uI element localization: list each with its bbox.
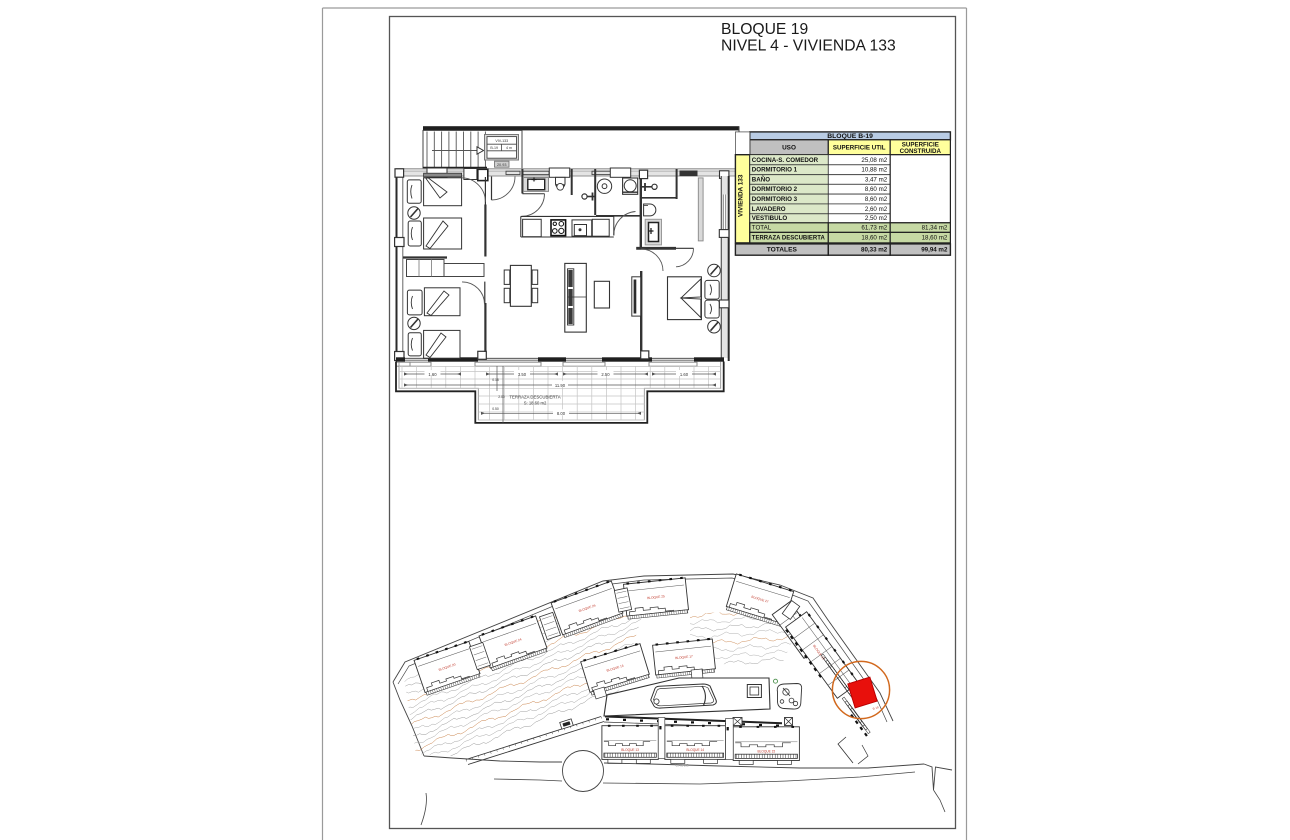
svg-text:B-19: B-19 [490,146,498,150]
svg-text:S: 18.60 m2: S: 18.60 m2 [524,401,547,406]
svg-text:3,47 m2: 3,47 m2 [865,176,888,183]
svg-text:VIV-133: VIV-133 [495,139,508,143]
svg-text:11.90: 11.90 [555,383,566,388]
svg-text:TOTALES: TOTALES [767,247,798,254]
svg-text:BLOQUE B-19: BLOQUE B-19 [827,133,873,140]
svg-text:BLOQUE 13: BLOQUE 13 [621,748,639,752]
svg-text:20.93: 20.93 [497,163,507,167]
svg-text:2.00: 2.00 [498,395,505,399]
svg-text:VIVIENDA 133: VIVIENDA 133 [738,174,745,217]
svg-text:USO: USO [782,144,796,151]
svg-text:LAVADERO: LAVADERO [752,206,786,213]
svg-text:CONSTRUIDA: CONSTRUIDA [900,148,942,155]
svg-text:1.60: 1.60 [428,372,437,377]
svg-text:TOTAL: TOTAL [752,224,772,231]
svg-text:61,73 m2: 61,73 m2 [861,224,887,231]
svg-text:25,08 m2: 25,08 m2 [861,157,887,164]
svg-text:VESTIBULO: VESTIBULO [752,215,788,222]
svg-text:SUPERFICIE UTIL: SUPERFICIE UTIL [833,144,886,151]
svg-text:8,60 m2: 8,60 m2 [865,186,888,193]
svg-text:DORMITORIO 2: DORMITORIO 2 [752,186,798,193]
svg-text:0.50: 0.50 [492,407,499,411]
svg-text:C A L L E: C A L L E [675,764,688,768]
svg-text:1.60: 1.60 [680,372,689,377]
svg-text:DORMITORIO 1: DORMITORIO 1 [752,167,798,174]
svg-text:TERRAZA DESCUBIERTA: TERRAZA DESCUBIERTA [752,236,826,242]
svg-text:BLOQUE 15: BLOQUE 15 [757,749,775,753]
svg-text:BLOQUE 14: BLOQUE 14 [686,748,704,752]
svg-text:18,60 m2: 18,60 m2 [861,235,887,242]
svg-text:4 m: 4 m [506,146,512,150]
svg-text:8.00: 8.00 [557,411,566,416]
svg-text:81,34 m2: 81,34 m2 [922,224,948,231]
svg-text:0.18: 0.18 [492,378,499,382]
svg-text:8,60 m2: 8,60 m2 [865,196,888,203]
svg-text:18,60 m2: 18,60 m2 [922,235,948,242]
svg-text:3.50: 3.50 [518,372,527,377]
svg-text:80,33 m2: 80,33 m2 [861,247,888,254]
svg-text:TERRAZA DESCUBIERTA: TERRAZA DESCUBIERTA [509,395,560,400]
svg-text:10,88 m2: 10,88 m2 [861,167,887,174]
svg-text:BLOQUE 19: BLOQUE 19 [721,21,808,38]
svg-text:DORMITORIO 3: DORMITORIO 3 [752,196,798,203]
svg-text:99,94 m2: 99,94 m2 [921,247,948,254]
svg-text:2,60 m2: 2,60 m2 [865,206,888,213]
svg-text:COCINA-S. COMEDOR: COCINA-S. COMEDOR [752,157,819,164]
svg-text:2,50 m2: 2,50 m2 [865,215,888,222]
svg-text:NIVEL 4 - VIVIENDA 133: NIVEL 4 - VIVIENDA 133 [721,38,896,55]
svg-text:2.50: 2.50 [601,372,610,377]
svg-text:BAÑO: BAÑO [752,176,770,183]
